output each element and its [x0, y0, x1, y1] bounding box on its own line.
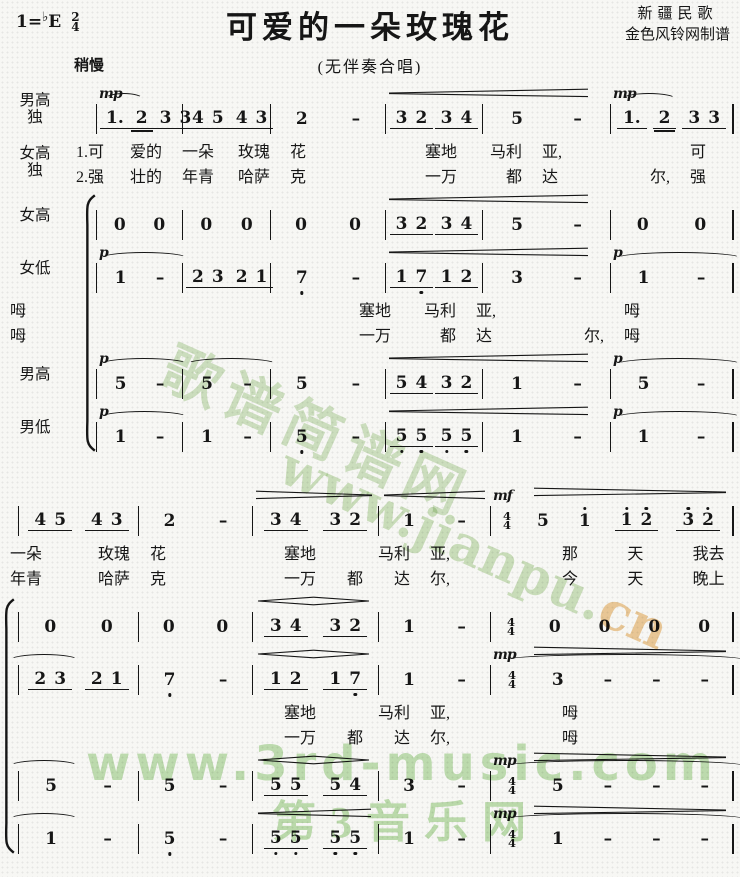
- note-number: 3: [111, 510, 123, 530]
- system-brace: [82, 194, 96, 452]
- note: 4: [87, 511, 107, 530]
- note: 1: [634, 269, 654, 288]
- crescendo-hairpin: [258, 808, 371, 818]
- marks-strip: [482, 243, 610, 263]
- note: –: [453, 777, 470, 796]
- lyric-cell: 一万都达: [274, 564, 420, 589]
- note-number: –: [156, 268, 165, 288]
- marks-strip: [252, 592, 378, 612]
- note: –: [693, 375, 710, 394]
- lyric-syllable: 那: [562, 540, 578, 564]
- note-number: –: [697, 374, 706, 394]
- note-group: –: [451, 671, 472, 690]
- meter-change: 44: [508, 830, 516, 849]
- marks-strip: [138, 486, 252, 506]
- lyric-syllable: 一万: [284, 724, 316, 748]
- note: –: [600, 777, 617, 796]
- lyric-syllable: 一朵: [182, 138, 214, 162]
- lyric-syllable: 亚,: [430, 699, 450, 723]
- note-number: –: [457, 829, 466, 849]
- note: 5: [533, 512, 553, 531]
- marks-strip: mp: [490, 645, 734, 665]
- note: 4: [345, 776, 365, 795]
- note-number: 7: [296, 268, 308, 288]
- measure-cells: 5–: [482, 210, 610, 240]
- note-group: 0: [38, 618, 62, 637]
- note-number: 5: [270, 828, 282, 848]
- note-group: 45: [28, 511, 72, 531]
- part-label-text: 女高: [0, 207, 66, 224]
- note: –: [453, 830, 470, 849]
- marks-strip: [385, 84, 482, 104]
- note-group: 32: [676, 511, 720, 531]
- note-group: 5: [109, 375, 133, 394]
- note-number: 4: [461, 108, 473, 128]
- note-group: 0: [210, 618, 234, 637]
- measure-cells: 1–: [378, 612, 490, 642]
- lyric-cell: 今天晚上请你: [552, 564, 740, 589]
- note-number: –: [156, 374, 165, 394]
- measure-cells: 1–: [378, 665, 490, 695]
- note: 5: [325, 776, 345, 795]
- octave-dot-low: [465, 450, 468, 453]
- note-group: 5: [505, 216, 529, 235]
- lyric-syllable: 达: [394, 565, 410, 589]
- lyric-line-1: 呣塞地马利亚,呣: [0, 296, 740, 321]
- measure: 00: [96, 190, 182, 240]
- octave-dot-low: [445, 450, 448, 453]
- note-group: –: [691, 428, 712, 447]
- note: 3: [266, 511, 286, 530]
- note-group: 0: [642, 618, 666, 637]
- measure: 1–: [378, 486, 490, 536]
- note-group: –: [598, 777, 619, 796]
- note: 5: [160, 777, 180, 796]
- note-group: –: [691, 375, 712, 394]
- note-group: 0: [95, 618, 119, 637]
- measure: 1–: [182, 402, 270, 452]
- dynamic-mp: mp: [493, 647, 516, 663]
- note-number: 0: [599, 617, 611, 637]
- note-group: 0: [631, 216, 655, 235]
- lyric-cell: 2.强壮的: [66, 162, 172, 187]
- swell-hairpin: [258, 755, 369, 765]
- lyric-line-2: 一万都达尔,呣: [0, 723, 740, 748]
- note-group: 55: [264, 829, 308, 849]
- measure: 1–: [378, 592, 490, 642]
- note: 5: [548, 777, 568, 796]
- decrescendo-hairpin: [534, 805, 726, 815]
- note: –: [648, 830, 665, 849]
- note-group: 0: [593, 618, 617, 637]
- measure: p5–: [610, 349, 734, 399]
- note: 3: [704, 109, 724, 128]
- note-number: 3: [441, 214, 453, 234]
- lyric-cell: 克: [140, 564, 274, 589]
- part-label-line: 男高: [4, 366, 66, 383]
- note-number: –: [457, 776, 466, 796]
- note: 3: [50, 670, 70, 689]
- note: –: [648, 777, 665, 796]
- lyric-syllable: 今: [562, 565, 578, 589]
- measure-cells: 1–: [378, 506, 490, 536]
- note: 1: [111, 269, 131, 288]
- measure: 5–: [270, 349, 385, 399]
- note-number: 1: [579, 511, 591, 531]
- meter-digit: 4: [508, 786, 516, 796]
- note-number: –: [604, 776, 613, 796]
- marks-strip: [182, 190, 270, 210]
- note: 0: [159, 618, 179, 637]
- lyric-syllable: 塞地: [425, 138, 457, 162]
- note-group: –: [213, 512, 234, 531]
- note-number: –: [219, 511, 228, 531]
- note-group: –: [150, 269, 171, 288]
- note-number: 5: [329, 775, 341, 795]
- note-number: 5: [552, 776, 564, 796]
- note: –: [99, 777, 116, 796]
- note-group: 2: [653, 109, 677, 129]
- measure: 7–: [270, 243, 385, 293]
- note-group: 5: [158, 830, 182, 849]
- note-number: 5: [290, 775, 302, 795]
- note-group: 5: [290, 428, 314, 447]
- note-number: –: [457, 617, 466, 637]
- marks-strip: [182, 349, 270, 369]
- marks-strip: mp: [490, 804, 734, 824]
- lyric-cell: 塞地马利: [415, 137, 532, 162]
- marks-strip: [385, 402, 482, 422]
- note-number: –: [697, 427, 706, 447]
- lyric-cell: 花: [280, 137, 415, 162]
- staff-row-女高: 女高00000032345–00: [0, 190, 740, 240]
- note: –: [215, 512, 232, 531]
- note-number: –: [573, 268, 582, 288]
- note-number: 0: [114, 215, 126, 235]
- lyric-syllable: 花: [150, 540, 166, 564]
- note-number: 5: [329, 828, 341, 848]
- note: 1: [111, 428, 131, 447]
- note-number: –: [652, 670, 661, 690]
- note-group: 3: [397, 777, 421, 796]
- note: 1: [252, 268, 272, 287]
- note: 0: [196, 216, 216, 235]
- note-group: 1: [109, 428, 133, 447]
- note: 4: [286, 511, 306, 530]
- credit-transcriber: 金色风铃网制谱: [625, 25, 730, 46]
- note-group: 55: [323, 829, 367, 849]
- measure-cells: 4543: [18, 506, 138, 536]
- note: 7: [292, 269, 312, 288]
- note: 0: [595, 618, 615, 637]
- note-number: 0: [698, 617, 710, 637]
- note: 4: [232, 109, 252, 128]
- note: –: [569, 269, 586, 288]
- marks-strip: mf: [490, 486, 734, 506]
- lyric-syllable: 年青: [10, 565, 42, 589]
- measure-cells: 3234: [385, 210, 482, 240]
- marks-strip: mp: [610, 84, 734, 104]
- meter-change: 44: [503, 512, 511, 531]
- note-group: 1: [397, 830, 421, 849]
- note-group: –: [346, 110, 367, 129]
- octave-dot-low: [353, 852, 356, 855]
- measure-cells: 2321: [182, 263, 270, 293]
- lyric-syllable: 呣: [10, 297, 26, 321]
- note-group: 23: [28, 670, 72, 690]
- lyric-cell: [214, 321, 349, 346]
- part-label: 男高独: [0, 84, 96, 134]
- lyric-syllable: 尔,: [650, 163, 670, 187]
- note: 0: [149, 216, 169, 235]
- note-number: 1: [111, 669, 123, 689]
- lyric-cell: 塞地马利: [274, 539, 420, 564]
- marks-strip: [182, 84, 270, 104]
- note-number: 5: [45, 776, 57, 796]
- note: –: [348, 375, 365, 394]
- note: 5: [286, 776, 306, 795]
- measure-cells: 5–: [610, 369, 734, 399]
- note-number: 5: [115, 374, 127, 394]
- note: 7: [412, 268, 432, 287]
- measure-cells: 5–: [18, 771, 138, 801]
- measure: 1217: [252, 645, 378, 695]
- note-number: 5: [511, 215, 523, 235]
- lyric-cell: 强壮的: [680, 162, 740, 187]
- part-label-line: 男低: [4, 419, 66, 436]
- note-number: 5: [290, 828, 302, 848]
- lyric-syllable: 克: [290, 163, 306, 187]
- measure-cells: 1–: [18, 824, 138, 854]
- note-number: 2: [290, 669, 302, 689]
- measure: mp1.233: [96, 84, 182, 134]
- measure: 440000: [490, 592, 734, 642]
- note-number: 3: [708, 108, 720, 128]
- note: –: [152, 269, 169, 288]
- marks-strip: [18, 751, 138, 771]
- measure: 2–: [138, 486, 252, 536]
- note-group: 12: [435, 268, 479, 288]
- note: 2: [345, 511, 365, 530]
- swell-hairpin: [258, 596, 369, 606]
- marks-strip: [385, 349, 482, 369]
- note-group: –: [97, 777, 118, 796]
- score-body: 男高独mp1.23345432–32345–mp1.233女高独1.可爱的一朵玫…: [0, 84, 740, 854]
- system-brace: [1, 598, 15, 854]
- lyric-syllable: 马利: [490, 138, 522, 162]
- note-number: –: [604, 829, 613, 849]
- marks-strip: [378, 592, 490, 612]
- note-number: –: [219, 829, 228, 849]
- measure-cells: 445–––: [490, 771, 734, 801]
- note-number: 1: [403, 829, 415, 849]
- note-number: 0: [637, 215, 649, 235]
- note-group: –: [646, 830, 667, 849]
- lyric-syllable: 塞地: [284, 540, 316, 564]
- note: –: [348, 428, 365, 447]
- measure: 1–: [482, 402, 610, 452]
- lyric-cell: 一朵玫瑰: [172, 137, 280, 162]
- note-group: 1: [573, 512, 597, 531]
- note-group: 1: [397, 512, 421, 531]
- measure-cells: 7–: [270, 263, 385, 293]
- note-number: –: [701, 776, 710, 796]
- lyric-cell: [106, 321, 214, 346]
- note-number: 5: [537, 511, 549, 531]
- marks-strip: [378, 486, 490, 506]
- lyric-syllable: 都: [506, 163, 522, 187]
- dynamic-p: p: [99, 351, 108, 367]
- note: 5: [292, 428, 312, 447]
- measure-cells: 00: [18, 612, 138, 642]
- part-label-line: 独: [4, 162, 66, 179]
- lyric-syllable: 达: [394, 724, 410, 748]
- lyric-cell: 亚,: [420, 539, 552, 564]
- staff-row: 45432–34321–mf44511232: [0, 486, 740, 536]
- note-group: –: [213, 671, 234, 690]
- part-label-text: 男低: [0, 419, 66, 436]
- note-number: 1: [403, 670, 415, 690]
- octave-dot-low: [420, 291, 423, 294]
- lyric-syllable: 达: [476, 322, 492, 346]
- measure-cells: 1.233: [610, 104, 734, 134]
- note-number: 5: [164, 829, 176, 849]
- note: 1: [399, 512, 419, 531]
- lyric-cell: [140, 698, 274, 723]
- note-number: 2: [659, 108, 671, 128]
- note: 2: [636, 511, 656, 530]
- note-number: –: [243, 374, 252, 394]
- staff-row: 5–5–55543–mp445–––: [0, 751, 740, 801]
- note: 1: [634, 428, 654, 447]
- note: 1: [399, 830, 419, 849]
- note-group: –: [451, 618, 472, 637]
- marks-strip: [378, 751, 490, 771]
- measure-cells: 5555: [385, 422, 482, 452]
- marks-strip: p: [610, 243, 734, 263]
- note: 0: [212, 618, 232, 637]
- lyrics-block: 塞地马利亚,呣一万都达尔,呣: [0, 698, 740, 748]
- note-group: –: [695, 777, 716, 796]
- note-number: 2: [296, 109, 308, 129]
- part-label-line: 独: [4, 109, 66, 126]
- note-number: 1: [256, 267, 268, 287]
- note-number: –: [219, 776, 228, 796]
- note-group: –: [695, 671, 716, 690]
- note-group: –: [150, 375, 171, 394]
- lyric-line-2: 2.强壮的年青哈萨克一万都达尔,强壮的: [66, 162, 740, 187]
- lyric-line-2: 呣一万都达尔,呣: [0, 321, 740, 346]
- note-group: 55: [390, 427, 434, 447]
- note-group: –: [646, 671, 667, 690]
- note-group: 0: [147, 216, 171, 235]
- note: 2: [457, 374, 477, 393]
- measure-cells: 1–: [378, 824, 490, 854]
- lyric-cell: 呣: [614, 321, 740, 346]
- note-group: –: [237, 428, 258, 447]
- note: –: [600, 671, 617, 690]
- note-group: 0: [543, 618, 567, 637]
- note-group: –: [646, 777, 667, 796]
- note-group: 34: [264, 511, 308, 531]
- note-number: 4: [416, 373, 428, 393]
- measure-cells: 440000: [490, 612, 734, 642]
- note-number: 2: [461, 373, 473, 393]
- note-group: 2: [158, 512, 182, 531]
- marks-strip: [385, 243, 482, 263]
- lyric-syllable: 壮的: [130, 163, 162, 187]
- note: 0: [690, 216, 710, 235]
- lyric-syllable: 亚,: [430, 540, 450, 564]
- note: –: [697, 777, 714, 796]
- note: 3: [507, 269, 527, 288]
- measure-cells: 3432: [252, 612, 378, 642]
- note-group: –: [97, 830, 118, 849]
- lyric-syllable: 都: [347, 565, 363, 589]
- note-group: –: [451, 830, 472, 849]
- lyric-syllable: 都: [440, 322, 456, 346]
- note-number: 3: [256, 108, 268, 128]
- lyric-cell: 1.可爱的: [66, 137, 172, 162]
- note: –: [453, 671, 470, 690]
- note: 7: [345, 670, 365, 689]
- note-number: 7: [349, 669, 361, 689]
- note-number: 0: [44, 617, 56, 637]
- note: 0: [40, 618, 60, 637]
- note-number: 0: [101, 617, 113, 637]
- marks-strip: [138, 592, 252, 612]
- note-number: –: [652, 829, 661, 849]
- note: 1: [41, 830, 61, 849]
- measure-cells: 5554: [252, 771, 378, 801]
- note-group: 21: [85, 670, 129, 690]
- measure: 2321: [182, 243, 270, 293]
- note-number: –: [352, 374, 361, 394]
- measure-cells: 7–: [138, 665, 252, 695]
- note-number: 3: [441, 108, 453, 128]
- octave-dot-low: [353, 693, 356, 696]
- measure-cells: 1–: [96, 263, 182, 293]
- lyric-cell: 尔,: [420, 564, 552, 589]
- marks-strip: [270, 349, 385, 369]
- marks-strip: [378, 645, 490, 665]
- note-number: 1: [396, 267, 408, 287]
- note-number: 5: [164, 776, 176, 796]
- measure-cells: 5–: [96, 369, 182, 399]
- lyrics-block: 一朵玫瑰花塞地马利亚,那天我去山上年青哈萨克一万都达尔,今天晚上请你: [0, 539, 740, 589]
- marks-strip: p: [96, 349, 182, 369]
- note-group: –: [451, 777, 472, 796]
- note: –: [152, 428, 169, 447]
- note: –: [569, 375, 586, 394]
- lyric-lines: 1.可爱的一朵玫瑰花塞地马利亚,可爱的2.强壮的年青哈萨克一万都达尔,强壮的: [66, 137, 740, 187]
- note-number: 5: [270, 775, 282, 795]
- measure: 1–: [378, 804, 490, 854]
- lyrics-block: 女高独1.可爱的一朵玫瑰花塞地马利亚,可爱的2.强壮的年青哈萨克一万都达尔,强壮…: [0, 137, 740, 187]
- note-number: 4: [461, 214, 473, 234]
- marks-strip: [270, 402, 385, 422]
- note-number: 5: [296, 427, 308, 447]
- note-group: –: [567, 216, 588, 235]
- lyric-syllable: 2.强: [76, 163, 104, 187]
- note: 4: [457, 109, 477, 128]
- note: 4: [30, 511, 50, 530]
- note-group: 1: [505, 375, 529, 394]
- note-group: 5: [290, 375, 314, 394]
- marks-strip: [490, 592, 734, 612]
- octave-dot-low: [420, 450, 423, 453]
- staff-row: 23217–12171–mp443–––: [0, 645, 740, 695]
